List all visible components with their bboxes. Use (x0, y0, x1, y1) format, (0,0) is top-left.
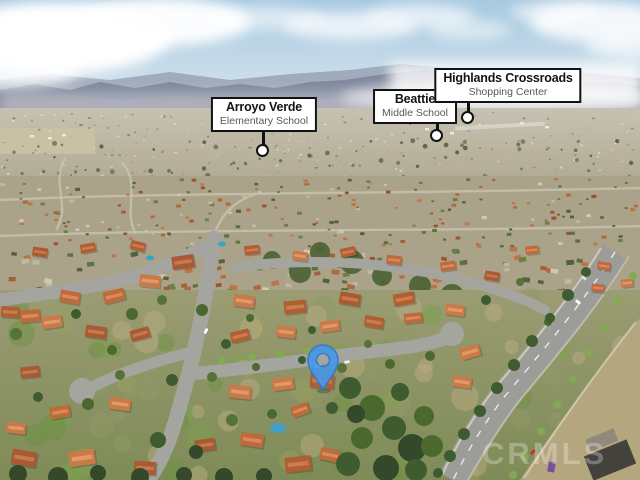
valley-cityscape (0, 108, 640, 180)
callout-dot (430, 129, 443, 142)
callout-subtitle: Elementary School (220, 116, 308, 127)
callout-title: Arroyo Verde (220, 101, 308, 115)
mls-watermark: CRMLS (482, 436, 607, 472)
callout-title: Highlands Crossroads (443, 72, 572, 86)
callout-arroyo-verde-elementary: Arroyo Verde Elementary School (211, 97, 317, 132)
callout-dot (461, 111, 474, 124)
callout-subtitle: Shopping Center (443, 87, 572, 98)
callout-subtitle: Middle School (382, 108, 448, 119)
aerial-listing-photo: Arroyo Verde Elementary School Beattie M… (0, 0, 640, 480)
callout-dot (256, 144, 269, 157)
callout-highlands-crossroads-shopping: Highlands Crossroads Shopping Center (434, 68, 581, 103)
